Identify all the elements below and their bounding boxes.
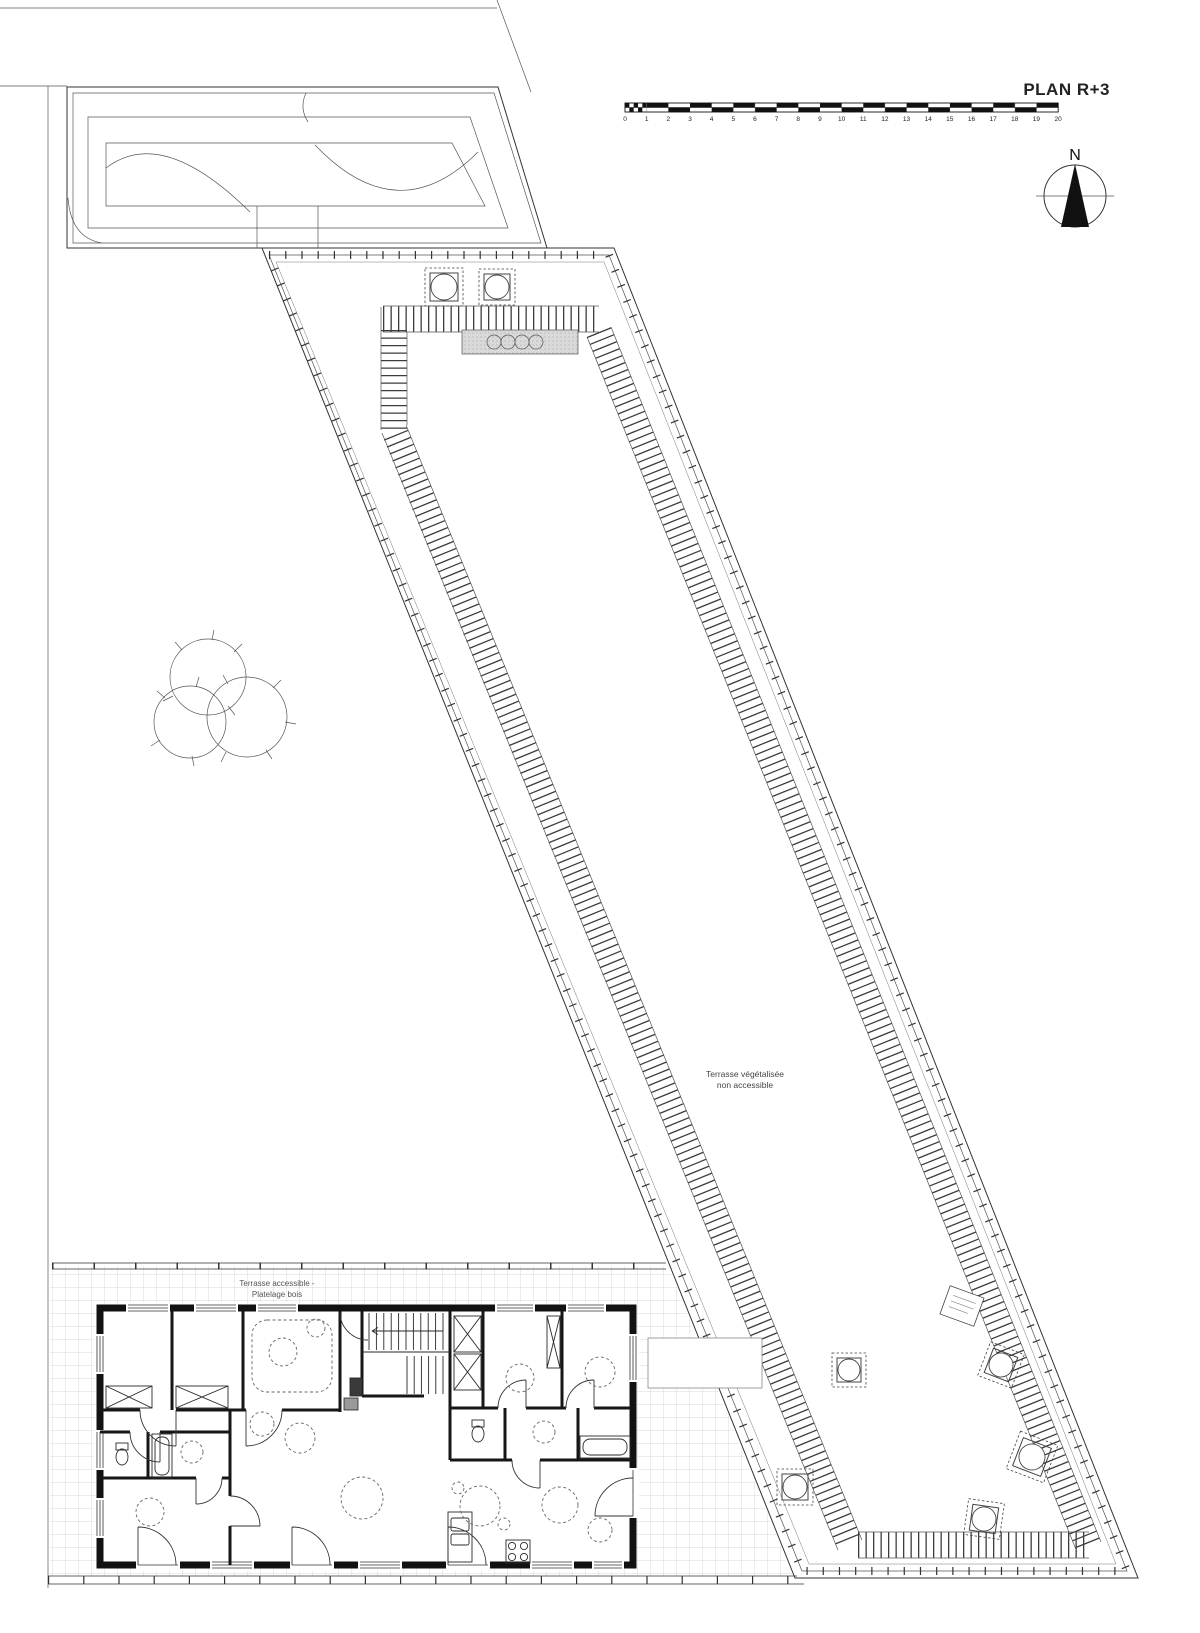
scale-tick-label: 9 xyxy=(818,116,822,123)
scale-tick-label: 17 xyxy=(989,116,997,123)
apartment-plan xyxy=(94,1302,639,1571)
roof-label-line2: non accessible xyxy=(717,1080,774,1090)
scale-tick-label: 15 xyxy=(946,116,954,123)
roof-arc-right xyxy=(315,145,478,190)
skylight xyxy=(964,1499,1005,1540)
roof-label-line1: Terrasse végétalisée xyxy=(706,1069,784,1079)
roof-vent-unit xyxy=(462,330,578,354)
apartment-footprint xyxy=(96,1304,637,1569)
scale-tick-label: 19 xyxy=(1033,116,1041,123)
scale-tick-label: 7 xyxy=(775,116,779,123)
scale-tick-label: 1 xyxy=(645,116,649,123)
north-label: N xyxy=(1069,147,1081,164)
skylight xyxy=(425,268,463,306)
scale-bar: 0 1 2 3 4 5 6 7 8 9 10 11 12 13 14 15 16… xyxy=(623,103,1062,123)
scale-tick-label: 14 xyxy=(925,116,933,123)
terrace-label-line2: Platelage bois xyxy=(252,1290,302,1299)
page-title: PLAN R+3 xyxy=(1023,80,1110,99)
scale-tick-label: 12 xyxy=(881,116,889,123)
scale-tick-label: 20 xyxy=(1054,116,1062,123)
scale-tick-label: 13 xyxy=(903,116,911,123)
skylight xyxy=(777,1469,813,1505)
north-arrow: N xyxy=(1036,147,1114,227)
tree-canopy xyxy=(207,675,296,762)
scale-tick-label: 3 xyxy=(688,116,692,123)
scale-tick-label: 2 xyxy=(666,116,670,123)
scale-tick-label: 11 xyxy=(860,116,867,123)
scale-bar-labels: 0 1 2 3 4 5 6 7 8 9 10 11 12 13 14 15 16… xyxy=(623,116,1062,123)
scale-tick-label: 8 xyxy=(796,116,800,123)
scale-tick-label: 5 xyxy=(731,116,735,123)
roof-bulkhead xyxy=(648,1338,762,1388)
roof-arc-left xyxy=(106,154,250,212)
scale-tick-label: 18 xyxy=(1011,116,1019,123)
north-needle xyxy=(1061,164,1089,227)
scale-tick-label: 16 xyxy=(968,116,976,123)
neighbor-building-outline xyxy=(67,87,547,248)
skylight xyxy=(479,269,515,305)
tree-canopy xyxy=(151,677,226,766)
duct-shaft xyxy=(350,1378,362,1396)
floor-plan-sheet: PLAN R+3 0 1 2 3 4 5 6 7 8 9 10 11 12 13 xyxy=(0,0,1200,1633)
skylight xyxy=(978,1342,1025,1389)
elevator-shaft xyxy=(344,1398,358,1410)
scale-tick-label: 0 xyxy=(623,116,627,123)
scale-tick-label: 4 xyxy=(710,116,714,123)
skylight xyxy=(832,1353,866,1387)
scale-tick-label: 6 xyxy=(753,116,757,123)
title-block: PLAN R+3 0 1 2 3 4 5 6 7 8 9 10 11 12 13 xyxy=(623,80,1114,227)
roof-annotation-box xyxy=(940,1286,984,1327)
tree-canopy-group xyxy=(151,630,296,766)
tree-canopy xyxy=(163,630,246,715)
skylight xyxy=(1006,1431,1058,1483)
terrace-label-line1: Terrasse accessible - xyxy=(239,1279,314,1288)
scale-tick-label: 10 xyxy=(838,116,846,123)
